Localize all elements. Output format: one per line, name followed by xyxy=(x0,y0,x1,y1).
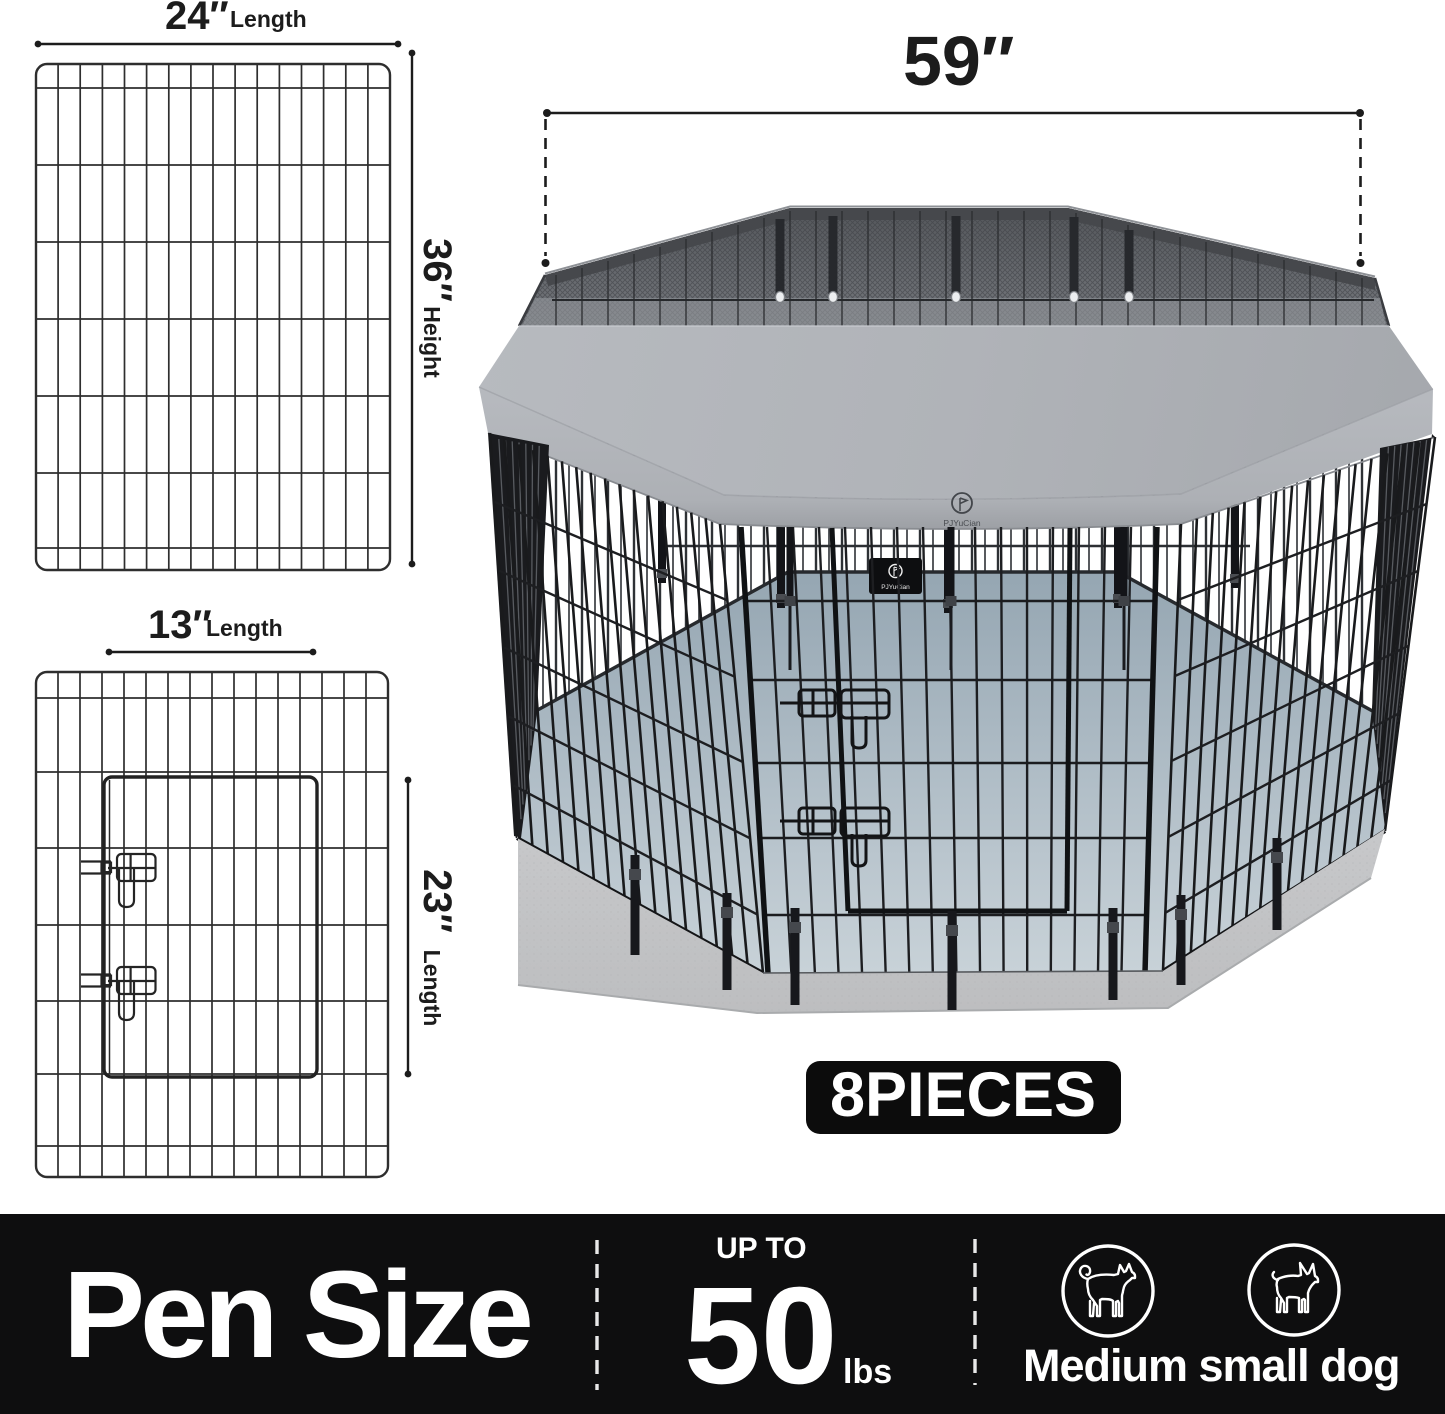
svg-text:59″: 59″ xyxy=(903,22,1014,100)
svg-text:PJYuCian: PJYuCian xyxy=(881,584,910,591)
svg-text:PJYuCian: PJYuCian xyxy=(943,518,981,528)
svg-text:13″: 13″ xyxy=(148,603,212,647)
svg-text:Medium small dog: Medium small dog xyxy=(1023,1340,1400,1391)
svg-text:24″: 24″ xyxy=(165,0,229,38)
svg-text:lbs: lbs xyxy=(843,1353,892,1391)
svg-text:23″: 23″ xyxy=(415,869,459,933)
svg-text:Length: Length xyxy=(419,950,445,1027)
svg-text:Length: Length xyxy=(230,6,307,32)
svg-text:Length: Length xyxy=(206,615,283,641)
svg-text:Pen Size: Pen Size xyxy=(63,1247,530,1384)
svg-text:Height: Height xyxy=(419,306,445,378)
svg-text:50: 50 xyxy=(684,1259,838,1413)
svg-text:36″: 36″ xyxy=(415,238,459,302)
svg-text:8PIECES: 8PIECES xyxy=(830,1060,1096,1130)
